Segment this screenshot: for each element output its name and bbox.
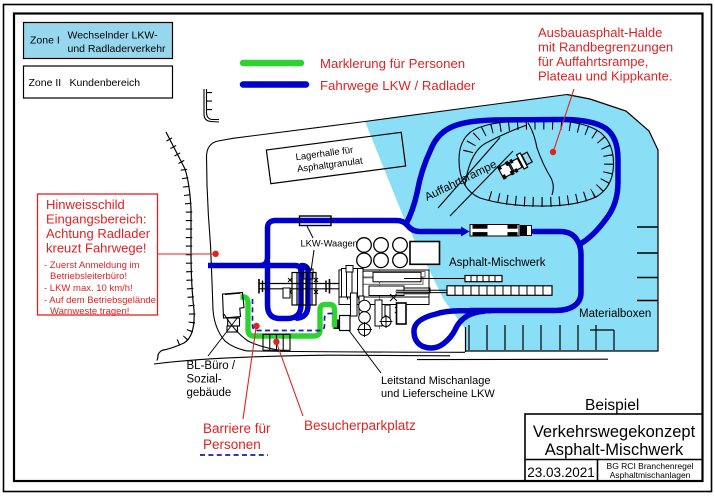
svg-text:Leitstand Mischanlage: Leitstand Mischanlage — [381, 375, 490, 387]
svg-text:- Zuerst Anmeldung im: - Zuerst Anmeldung im — [44, 260, 140, 271]
svg-text:Hinweisschild: Hinweisschild — [46, 197, 125, 212]
svg-text:Kundenbereich: Kundenbereich — [70, 77, 141, 89]
svg-text:mit Randbegrenzungen: mit Randbegrenzungen — [538, 40, 673, 55]
svg-text:Zone I: Zone I — [30, 35, 60, 47]
svg-text:LKW-Waagen: LKW-Waagen — [301, 239, 358, 249]
svg-text:23.03.2021: 23.03.2021 — [527, 465, 595, 480]
svg-text:Verkehrswegekonzept: Verkehrswegekonzept — [533, 423, 696, 441]
svg-text:- LKW max. 10 km/h!: - LKW max. 10 km/h! — [44, 283, 133, 294]
svg-text:Fahrwege LKW / Radlader: Fahrwege LKW / Radlader — [320, 78, 476, 93]
svg-text:- Auf dem Betriebsgelände: - Auf dem Betriebsgelände — [44, 295, 156, 306]
svg-text:und Lieferscheine LKW: und Lieferscheine LKW — [381, 388, 495, 400]
svg-text:und Radladerverkehr: und Radladerverkehr — [68, 43, 167, 55]
svg-text:BL-Büro /: BL-Büro / — [187, 360, 236, 372]
svg-text:Marklerung für Personen: Marklerung für Personen — [320, 56, 465, 71]
svg-text:Eingangsbereich:: Eingangsbereich: — [46, 212, 146, 227]
svg-text:Sozial-: Sozial- — [187, 374, 222, 386]
svg-text:Materialboxen: Materialboxen — [579, 308, 651, 320]
svg-text:Personen: Personen — [203, 437, 261, 452]
svg-text:Beispiel: Beispiel — [585, 397, 639, 414]
svg-text:kreuzt Fahrwege!: kreuzt Fahrwege! — [46, 241, 146, 256]
svg-text:Asphalt-Mischwerk: Asphalt-Mischwerk — [545, 441, 684, 459]
svg-text:Plateau und Kippkante.: Plateau und Kippkante. — [538, 69, 672, 84]
svg-text:Besucherparkplatz: Besucherparkplatz — [304, 418, 416, 433]
svg-text:Asphaltmischanlagen: Asphaltmischanlagen — [610, 470, 691, 480]
svg-text:Barriere für: Barriere für — [203, 421, 271, 436]
svg-text:Asphalt-Mischwerk: Asphalt-Mischwerk — [449, 257, 546, 269]
svg-text:Wechselnder LKW-: Wechselnder LKW- — [68, 30, 159, 42]
svg-text:Achtung Radlader: Achtung Radlader — [46, 226, 151, 241]
svg-text:gebäude: gebäude — [187, 387, 232, 399]
svg-text:Betriebsleiterbüro!: Betriebsleiterbüro! — [50, 271, 127, 282]
svg-text:Warnweste tragen!: Warnweste tragen! — [50, 306, 129, 317]
svg-text:für Auffahrtsrampe,: für Auffahrtsrampe, — [538, 54, 648, 69]
svg-text:Zone II: Zone II — [29, 77, 62, 89]
svg-text:Ausbauasphalt-Halde: Ausbauasphalt-Halde — [538, 25, 662, 40]
